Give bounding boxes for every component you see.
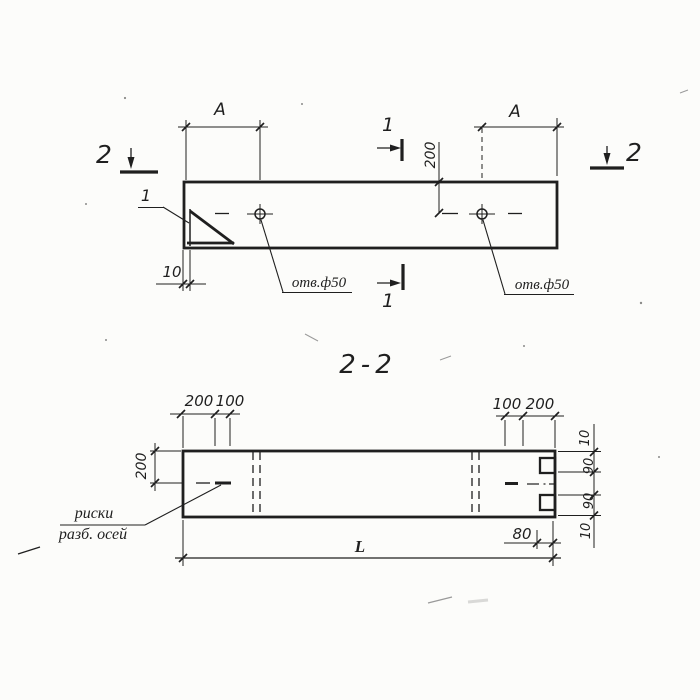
hole-label-right: отв.ф50 bbox=[506, 278, 578, 293]
dim-height-200-lines bbox=[150, 443, 181, 491]
section-centerline bbox=[150, 483, 555, 484]
dim-right-90-top-label: 90 bbox=[582, 451, 596, 481]
section-title: 2-2 bbox=[330, 352, 406, 378]
dim-right-10-top-label: 10 bbox=[578, 423, 592, 453]
dim-80-label: 80 bbox=[505, 527, 539, 542]
section-mark-2-right-label: 2 bbox=[622, 140, 646, 165]
dim-a-left-label: A bbox=[200, 102, 240, 119]
detail-callout-label: 1 bbox=[136, 188, 156, 204]
section-mark-2-left bbox=[120, 148, 158, 172]
dim-10-plan-label: 10 bbox=[155, 265, 189, 280]
axis-dashed-lines bbox=[253, 452, 479, 516]
dim-top-right-lines bbox=[496, 412, 564, 448]
section-mark-1-bottom-label: 1 bbox=[378, 292, 398, 311]
dim-200-plan-label: 200 bbox=[423, 133, 439, 177]
notch-upper bbox=[540, 458, 555, 473]
section-mark-1-top bbox=[377, 139, 402, 161]
hole-left bbox=[247, 204, 273, 224]
plan-view bbox=[120, 118, 624, 295]
dim-a-right-lines bbox=[474, 118, 564, 180]
section-mark-1-bottom bbox=[377, 264, 403, 290]
dim-top-left-lines bbox=[170, 410, 240, 448]
drawing-sheet: A A 1 1 2 2 1 200 10 отв.ф50 отв.ф50 2-2… bbox=[0, 0, 700, 700]
section-mark-1-top-label: 1 bbox=[378, 116, 398, 135]
axis-note-line1: риски bbox=[64, 506, 124, 522]
section-beam-outline bbox=[183, 451, 555, 517]
dim-top-right-200-label: 200 bbox=[522, 397, 558, 412]
section-mark-2-right bbox=[590, 146, 624, 168]
plan-beam-outline bbox=[184, 182, 557, 248]
dim-top-left-100-label: 100 bbox=[212, 394, 248, 409]
axis-note-line2: разб. осей bbox=[48, 527, 138, 543]
notch-lower bbox=[540, 495, 555, 510]
dim-height-200-label: 200 bbox=[134, 444, 150, 488]
gusset-hypotenuse bbox=[190, 211, 234, 244]
hole-right bbox=[469, 204, 495, 224]
dim-length-label: L bbox=[340, 538, 380, 555]
dim-right-10-bottom-label: 10 bbox=[579, 516, 593, 546]
dim-a-right-label: A bbox=[495, 104, 535, 121]
dim-a-left-lines bbox=[178, 120, 268, 180]
hole-label-left: отв.ф50 bbox=[283, 276, 355, 291]
section-mark-2-left-label: 2 bbox=[92, 142, 116, 167]
dim-right-90-bottom-label: 90 bbox=[582, 486, 596, 516]
dim-top-right-100-label: 100 bbox=[489, 397, 525, 412]
